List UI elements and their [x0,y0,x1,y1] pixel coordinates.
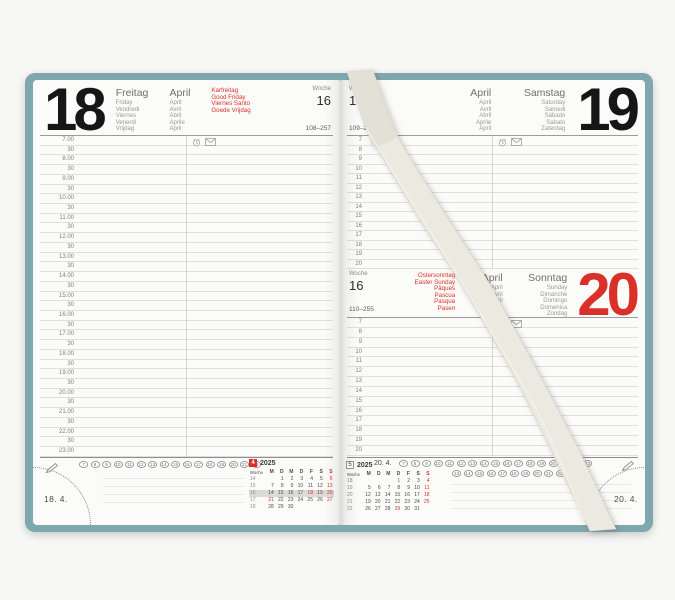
time-label: 14 [347,203,362,210]
mini-calendar-year: 2025 [357,462,373,469]
circled-day-number: 21 [544,470,553,477]
day-number-18: 18 [42,86,116,133]
calendar-day: 13 [324,483,334,490]
calendar-day [362,478,372,485]
calendar-day: 25 [421,499,431,506]
circled-day-number: 14 [480,460,489,467]
calendar-day: 23 [401,499,411,506]
time-label: 17 [347,231,362,238]
calendar-day-header: D [391,471,401,478]
calendar-week-number: 21 [346,499,362,506]
circled-day-number: 15 [491,460,500,467]
calendar-day-header: F [304,469,314,476]
mini-calendar-title: 42025 [249,459,340,467]
clock-icon [498,138,507,147]
circled-day-number: 7 [79,461,88,468]
time-label: 30 [40,165,74,172]
calendar-day: 2 [285,476,295,483]
time-label: 20 [347,260,362,267]
calendar-day: 8 [275,483,285,490]
holiday-names: OstersonntagEaster SundayPâquesPascuaPas… [395,273,455,312]
time-label: 30 [40,437,74,444]
calendar-day: 29 [391,506,401,513]
calendar-day: 30 [401,506,411,513]
month-name-line: April [169,126,211,133]
circled-day-number: 18 [206,461,215,468]
calendar-day: 26 [314,497,324,504]
left-time-grid: 7.00308.00309.003010.003011.003012.00301… [40,136,333,457]
calendar-day: 20 [372,499,382,506]
calendar-day-header: D [294,469,304,476]
month-name-line: April [465,273,503,284]
weekday-name-line: Vrijdag [116,126,170,133]
slot-icons [192,138,216,147]
calendar-day-header: D [372,471,382,478]
week-block: Woche 16 109–256 [349,86,395,134]
month-names: AprilAprilAvrilAbrilAprileApril [465,273,503,318]
left-circled-number-strip: 78910111213141516171819202122 [79,461,261,468]
time-label: 19 [347,250,362,257]
left-page-april-18: 18 FreitagFridayVendrediViernesVenerdìVr… [33,80,340,525]
calendar-day: 19 [314,490,324,497]
day-number-19: 19 [577,86,636,133]
calendar-day: 7 [382,485,392,492]
time-label: 30 [40,185,74,192]
calendar-day-header: S [314,469,324,476]
time-label: 20.00 [40,389,74,396]
calendar-day: 16 [285,490,295,497]
circled-day-number: 20 [229,461,238,468]
calendar-day [421,506,431,513]
calendar-week-number: 18 [249,504,265,511]
time-label: 30 [40,282,74,289]
envelope-icon [511,320,522,328]
calendar-day: 2 [401,478,411,485]
circled-day-number: 16 [183,461,192,468]
calendar-week-number: 15 [249,483,265,490]
slot-icons [498,320,522,329]
calendar-day: 26 [362,506,372,513]
week-label: Woche [285,86,331,92]
calendar-day: 14 [265,490,275,497]
mini-calendar-title: 52025 [346,461,440,469]
calendar-day: 16 [401,492,411,499]
week-number: 16 [349,93,395,108]
week-number: 16 [349,278,395,293]
holiday-names: KarfreitagGood FridayViernes SantoGoede … [211,88,285,114]
calendar-day-header: F [401,471,411,478]
circled-day-number: 19 [217,461,226,468]
time-label: 23.00 [40,447,74,454]
weekday-name-line: Samstag [503,88,565,99]
time-label: 30 [40,223,74,230]
circled-day-number: 16 [503,460,512,467]
mini-calendar-grid: WocheMDMDFSS1812341956789101120121314151… [346,471,440,513]
time-label: 30 [40,301,74,308]
column-divider [492,318,493,456]
time-label: 8 [347,328,362,335]
time-label: 8 [347,146,362,153]
calendar-day: 11 [304,483,314,490]
month-name-line: April [447,126,491,133]
calendar-day [314,504,324,511]
calendar-day: 29 [275,504,285,511]
calendar-week-number: 14 [249,476,265,483]
note-line [103,494,244,495]
time-label: 13 [347,193,362,200]
time-label: 11 [347,174,362,181]
weekday-names: SonntagSundayDimancheDomingoDomenicaZond… [513,273,568,318]
circled-day-number: 23 [583,460,592,467]
calendar-day: 7 [265,483,275,490]
time-label: 30 [40,398,74,405]
calendar-day-header: M [362,471,372,478]
day-of-year-count: 110–255 [349,306,374,313]
week-label: Woche [349,271,395,277]
circled-day-number: 14 [160,461,169,468]
time-label: 19.00 [40,369,74,376]
calendar-day: 10 [294,483,304,490]
calendar-day: 22 [275,497,285,504]
circled-day-number: 17 [514,460,523,467]
calendar-day: 28 [382,506,392,513]
day-of-year-count: 108–257 [306,125,331,132]
circled-day-number: 14 [464,470,473,477]
calendar-day [324,504,334,511]
time-label: 10.00 [40,194,74,201]
time-label: 10 [347,165,362,172]
time-label: 30 [40,379,74,386]
circled-day-number: 23 [567,470,576,477]
calendar-day: 6 [324,476,334,483]
calendar-week-number: 19 [346,485,362,492]
day-of-year-count: 109–256 [349,125,374,132]
calendar-week-number: 16 [249,490,265,497]
calendar-day: 27 [372,506,382,513]
envelope-icon [205,138,216,146]
column-divider [492,136,493,269]
time-label: 11 [347,357,362,364]
right-bottom-hour-grid: 7891011121314151617181920 [347,318,638,456]
time-label: 21.00 [40,408,74,415]
circled-day-number: 11 [445,460,454,467]
calendar-day: 24 [411,499,421,506]
calendar-day: 4 [304,476,314,483]
calendar-day [372,478,382,485]
time-label: 7 [347,136,362,143]
calendar-day: 27 [324,497,334,504]
mini-calendar-may: 52025WocheMDMDFSS18123419567891011201213… [346,461,440,513]
time-label: 30 [40,321,74,328]
holiday-name-line: Pasen [395,306,455,313]
mini-calendar-month-number: 5 [346,461,354,469]
circled-day-number: 13 [468,460,477,467]
circled-day-number: 22 [572,460,581,467]
right-top-header: Woche 16 109–256 AprilAprilAvrilAbrilApr… [349,86,636,134]
calendar-week-number: 22 [346,506,362,513]
time-label: 30 [40,204,74,211]
diary-cover: 18 FreitagFridayVendrediViernesVenerdìVr… [25,73,653,532]
calendar-week-label: Woche [249,469,265,476]
circled-day-number: 12 [457,460,466,467]
calendar-day: 19 [362,499,372,506]
right-page-april-19-20: Woche 16 109–256 AprilAprilAvrilAbrilApr… [340,80,645,525]
month-names: AprilAprilAvrilAbrilAprileApril [447,88,491,133]
time-label: 12 [347,184,362,191]
calendar-day: 9 [401,485,411,492]
weekday-name-line: Sonntag [513,273,568,284]
calendar-day-header: M [265,469,275,476]
circled-day-number: 20 [533,470,542,477]
weekday-name-line: Freitag [116,88,170,99]
calendar-day: 18 [421,492,431,499]
note-line [103,502,244,503]
circled-day-number: 10 [114,461,123,468]
month-names: AprilAprilAvrilAbrilAprileApril [169,88,211,133]
circled-day-number: 18 [510,470,519,477]
calendar-day: 23 [285,497,295,504]
circled-day-number: 11 [125,461,134,468]
week-block: Woche 16 110–255 [349,271,395,315]
time-label: 7 [347,318,362,325]
time-label: 18 [347,241,362,248]
month-name-line: April [447,88,491,99]
time-label: 9.00 [40,175,74,182]
calendar-day: 3 [411,478,421,485]
calendar-day: 1 [275,476,285,483]
calendar-day: 12 [362,492,372,499]
circled-day-number: 17 [498,470,507,477]
holiday-name-line: Goede Vrijdag [211,108,285,115]
schedule-end-rule [40,457,333,458]
calendar-day: 5 [362,485,372,492]
calendar-day: 6 [372,485,382,492]
circled-day-number: 18 [526,460,535,467]
calendar-day: 21 [265,497,275,504]
calendar-day: 1 [391,478,401,485]
envelope-icon [511,138,522,146]
note-line [103,478,244,479]
month-name-line: April [169,88,211,99]
left-page-header: 18 FreitagFridayVendrediViernesVenerdìVr… [42,86,331,134]
time-label: 18 [347,426,362,433]
corner-date-label: 18. 4. [44,494,68,504]
calendar-day: 9 [285,483,295,490]
calendar-day: 11 [421,485,431,492]
calendar-day-header: D [275,469,285,476]
calendar-day: 17 [294,490,304,497]
circled-day-number: 17 [194,461,203,468]
corner-date-label: 20. 4. [614,494,638,504]
calendar-day: 3 [294,476,304,483]
calendar-day: 21 [382,499,392,506]
slot-icons [498,138,522,147]
calendar-week-number: 20 [346,492,362,499]
calendar-week-number: 17 [249,497,265,504]
calendar-day: 31 [411,506,421,513]
calendar-day: 17 [411,492,421,499]
calendar-day: 5 [314,476,324,483]
calendar-day: 15 [391,492,401,499]
circled-day-number: 13 [452,470,461,477]
time-label: 30 [40,146,74,153]
circled-day-number: 8 [91,461,100,468]
circled-day-number: 15 [171,461,180,468]
calendar-day: 28 [265,504,275,511]
calendar-week-label: Woche [346,471,362,478]
mini-calendar-april: 42025WocheMDMDFSS14123456157891011121316… [249,459,340,511]
circled-day-number: 19 [537,460,546,467]
calendar-day: 12 [314,483,324,490]
calendar-day: 20 [324,490,334,497]
schedule-end-rule [347,457,638,458]
calendar-day: 13 [372,492,382,499]
week-label: Woche [349,86,395,92]
time-label: 30 [40,360,74,367]
circled-day-number: 21 [240,461,249,468]
calendar-day-header: S [324,469,334,476]
calendar-day [265,476,275,483]
time-label: 16 [347,407,362,414]
calendar-day: 30 [285,504,295,511]
circled-day-number: 9 [102,461,111,468]
circled-day-number: 16 [487,470,496,477]
circled-day-number: 21 [560,460,569,467]
time-label: 16 [347,222,362,229]
week-block: Woche 16 108–257 [285,86,331,134]
note-line [103,486,244,487]
calendar-day-header: M [382,471,392,478]
time-label: 18.00 [40,350,74,357]
time-label: 13.00 [40,253,74,260]
right-top-hour-grid: 7891011121314151617181920 [347,136,638,269]
calendar-day: 14 [382,492,392,499]
calendar-day-header: S [421,471,431,478]
calendar-day: 24 [294,497,304,504]
time-label: 30 [40,340,74,347]
column-divider [186,136,187,457]
circled-day-number: 19 [521,470,530,477]
calendar-day [294,504,304,511]
clock-icon [498,320,507,329]
time-label: 30 [40,418,74,425]
time-label: 16.00 [40,311,74,318]
time-label: 11.00 [40,214,74,221]
calendar-day [304,504,314,511]
calendar-day: 18 [304,490,314,497]
time-label: 22.00 [40,428,74,435]
calendar-week-number: 18 [346,478,362,485]
time-label: 7.00 [40,136,74,143]
open-pages: 18 FreitagFridayVendrediViernesVenerdìVr… [33,80,645,525]
mini-calendar-month-number: 4 [249,459,257,467]
week-number: 16 [285,93,331,108]
calendar-day-header: S [411,471,421,478]
time-label: 30 [40,262,74,269]
time-label: 20 [347,446,362,453]
calendar-day: 4 [421,478,431,485]
time-label: 9 [347,338,362,345]
time-label: 9 [347,155,362,162]
time-label: 15 [347,397,362,404]
time-label: 14.00 [40,272,74,279]
time-label: 10 [347,348,362,355]
time-label: 15 [347,212,362,219]
calendar-day: 25 [304,497,314,504]
time-label: 14 [347,387,362,394]
right-bottom-header: Woche 16 110–255 OstersonntagEaster Sund… [349,271,636,315]
calendar-day-header: M [285,469,295,476]
time-label: 19 [347,436,362,443]
time-label: 15.00 [40,292,74,299]
mini-calendar-year: 2025 [260,460,276,467]
time-label: 12 [347,367,362,374]
time-label: 30 [40,243,74,250]
calendar-day: 22 [391,499,401,506]
right-circled-number-strip-2: 1314151617181920212223 [452,470,576,477]
time-label: 17 [347,416,362,423]
calendar-day: 10 [411,485,421,492]
time-label: 12.00 [40,233,74,240]
time-label: 17.00 [40,330,74,337]
circled-day-number: 22 [556,470,565,477]
day-number-20: 20 [577,271,636,318]
circled-day-number: 20 [549,460,558,467]
mini-calendar-grid: WocheMDMDFSS1412345615789101112131614151… [249,469,340,511]
clock-icon [192,138,201,147]
weekday-name-line: Zaterdag [503,126,565,133]
time-label: 8.00 [40,155,74,162]
calendar-day [382,478,392,485]
circled-day-number: 13 [148,461,157,468]
weekday-names: FreitagFridayVendrediViernesVenerdìVrijd… [116,88,170,133]
calendar-day: 8 [391,485,401,492]
weekday-names: SamstagSaturdaySamediSábadoSabatoZaterda… [503,88,565,133]
calendar-day: 15 [275,490,285,497]
circled-day-number: 15 [475,470,484,477]
circled-day-number: 12 [137,461,146,468]
time-label: 13 [347,377,362,384]
